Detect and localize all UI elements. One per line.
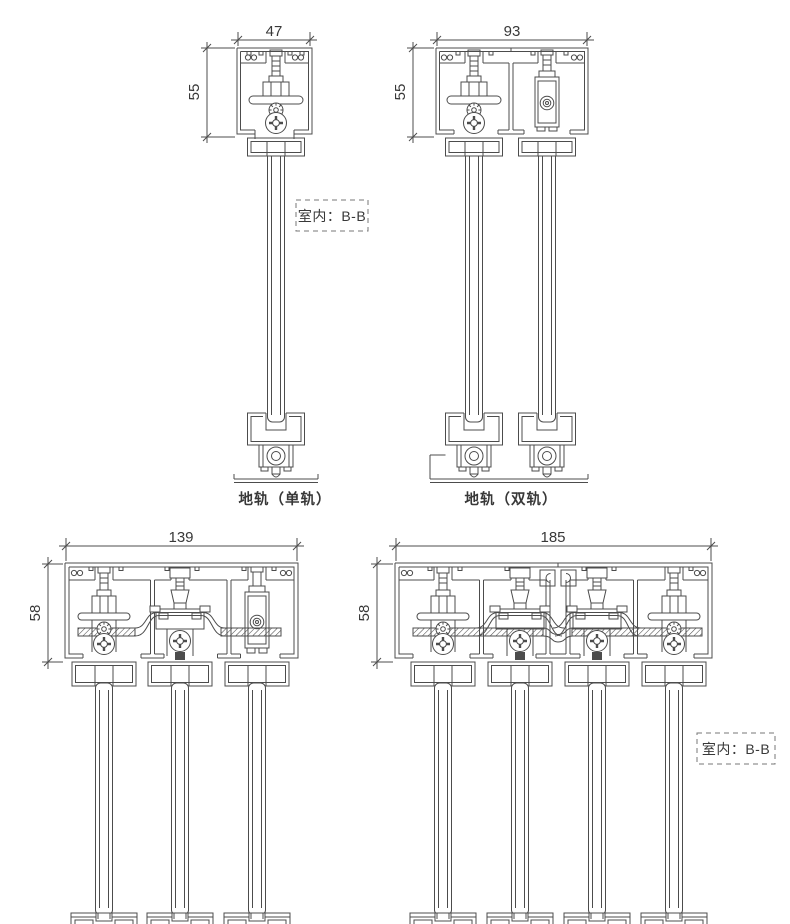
- floor-track-partial: [147, 913, 213, 924]
- drawing-bottom-quad: [371, 538, 775, 924]
- screw-port-icon: [401, 570, 412, 575]
- dim-value-single-width: 47: [266, 23, 283, 40]
- dim-value-single-height: 55: [186, 84, 203, 101]
- room-label: 室内：B-B: [702, 741, 770, 757]
- glass-panel: [249, 683, 266, 915]
- screw-port-icon: [441, 55, 452, 60]
- door-top-clamp: [411, 662, 475, 686]
- screw-port-icon: [245, 55, 256, 60]
- dim-value-quad-width: 185: [540, 529, 565, 546]
- screw-port-icon: [571, 55, 582, 60]
- floor-track-partial: [71, 913, 137, 924]
- hanging-guide: [245, 567, 269, 653]
- guide-block: [592, 652, 602, 660]
- door-top-clamp: [565, 662, 629, 686]
- hanging-guide: [535, 50, 559, 131]
- door-top-clamp: [642, 662, 706, 686]
- screw-port-icon: [292, 55, 303, 60]
- dimension-height: [371, 557, 393, 669]
- dim-value-triple-height: 58: [27, 605, 44, 622]
- drawing-top-double: [407, 32, 594, 483]
- glass-panel: [172, 683, 189, 915]
- dimension-height: [407, 42, 434, 143]
- dim-value-double-height: 55: [392, 84, 409, 101]
- interlock-linkage: [413, 606, 702, 642]
- roller-wheel: [170, 631, 191, 652]
- floor-track-partial: [224, 913, 290, 924]
- floor-track-partial: [641, 913, 707, 924]
- glass-panel: [268, 148, 285, 422]
- drawing-bottom-triple: [42, 538, 304, 924]
- drawing-canvas: 47 93 55 55 139 185 58 58 室内：B-B 室内：B-B …: [0, 0, 790, 924]
- roller-wheel: [510, 631, 531, 652]
- glass-panel: [435, 683, 452, 915]
- dimension-height: [42, 557, 63, 669]
- door-top-clamp: [519, 138, 576, 156]
- floor-track-partial: [487, 913, 553, 924]
- dim-value-triple-width: 139: [168, 529, 193, 546]
- screw-port-icon: [694, 570, 705, 575]
- door-top-clamp: [148, 662, 212, 686]
- glass-panel: [466, 148, 483, 422]
- door-top-clamp: [446, 138, 503, 156]
- floor-track-double: [430, 413, 588, 483]
- roller-wheel: [664, 634, 685, 655]
- screw-port-icon: [71, 570, 82, 575]
- guide-block: [175, 652, 185, 660]
- glass-panel: [666, 683, 683, 915]
- dimension-height: [201, 42, 235, 143]
- room-label: 室内：B-B: [298, 208, 366, 224]
- glass-panel: [539, 148, 556, 422]
- screw-port-icon: [280, 570, 291, 575]
- roller-wheel: [587, 631, 608, 652]
- door-top-clamp: [72, 662, 136, 686]
- roller-wheel: [94, 634, 115, 655]
- drawing-top-single: [201, 32, 368, 483]
- dim-value-double-width: 93: [504, 23, 521, 40]
- floor-track-partial: [564, 913, 630, 924]
- glass-panel: [96, 683, 113, 915]
- dim-value-quad-height: 58: [356, 605, 373, 622]
- floor-track-single: [234, 413, 318, 483]
- door-top-clamp: [225, 662, 289, 686]
- caption-double-track: 地轨（双轨）: [465, 490, 558, 508]
- guide-block: [515, 652, 525, 660]
- caption-single-track: 地轨（单轨）: [239, 490, 332, 508]
- door-top-clamp: [248, 138, 305, 156]
- glass-panel: [512, 683, 529, 915]
- roller-wheel: [433, 634, 454, 655]
- door-top-clamp: [488, 662, 552, 686]
- technical-drawing-sheet: 47 93 55 55 139 185 58 58 室内：B-B 室内：B-B …: [0, 0, 790, 924]
- floor-track-partial: [410, 913, 476, 924]
- top-track-profile: [436, 48, 588, 134]
- glass-panel: [589, 683, 606, 915]
